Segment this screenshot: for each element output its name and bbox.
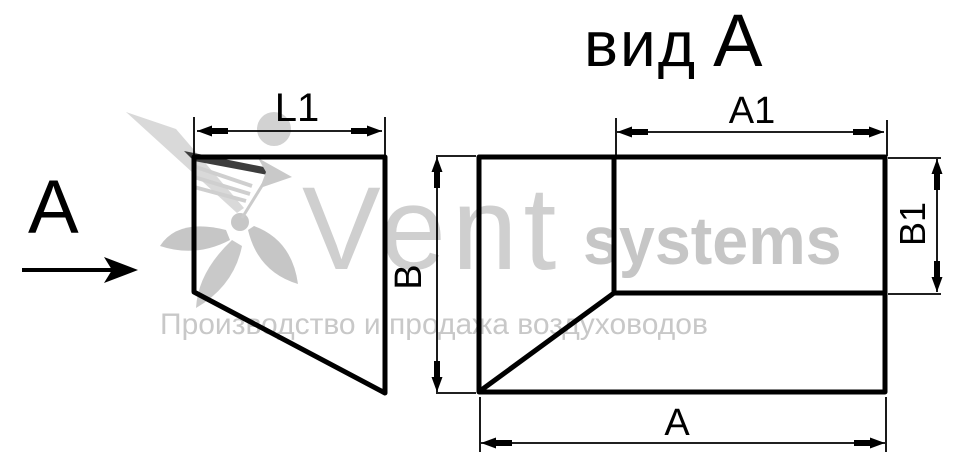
front-view-diagonal-line [480,293,614,391]
view-direction-label: А [28,170,79,246]
dim-label-b: В [384,252,434,302]
dim-label-b1: B1 [883,194,943,254]
front-view-outline [479,157,885,392]
duct-drawing-page: Vent systems Производство и продажа возд… [0,0,957,463]
duct-drawing-lines [0,0,957,463]
dim-label-a1: A1 [705,92,799,130]
view-direction-arrow [22,257,138,283]
drawing-title: вид А [584,4,764,78]
drawing-title-letter: А [713,4,764,78]
dim-label-l1: L1 [250,88,344,128]
side-view-outline [194,157,385,393]
dim-label-a: А [630,404,724,442]
dimension-arrowheads [197,126,943,449]
drawing-title-prefix: вид [584,12,697,76]
